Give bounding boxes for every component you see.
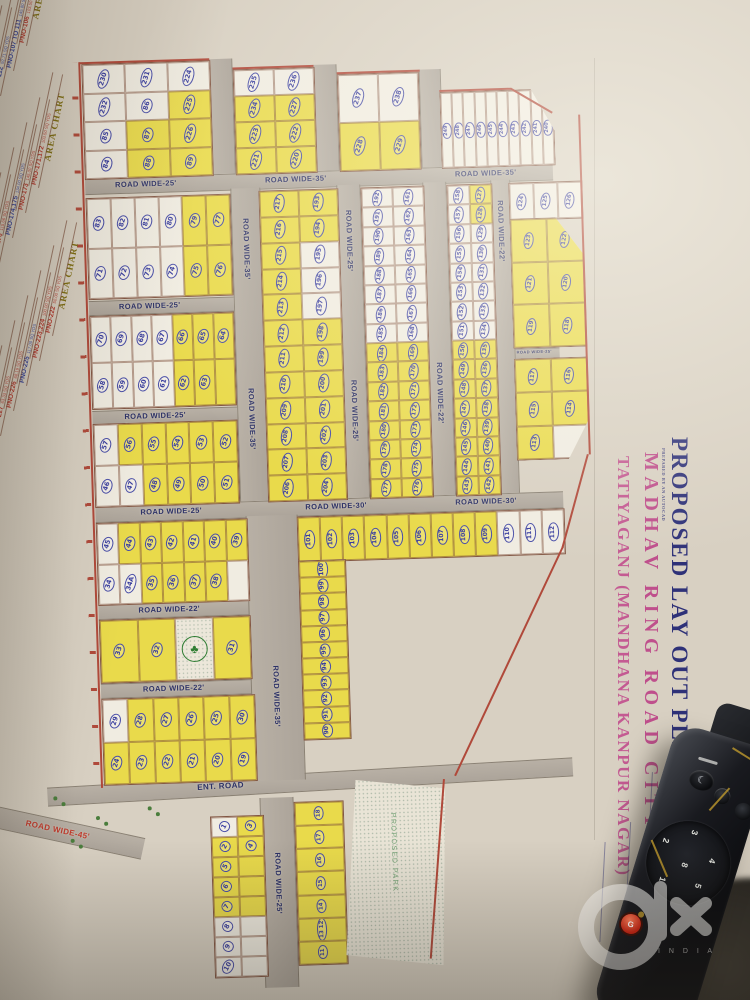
plot-cell: 145 [455,437,478,457]
olx-watermark: I N D I A [568,848,748,968]
plot-cell: 116 [551,357,588,391]
plot-number: 63 [197,374,212,392]
plot-number: 193 [312,193,325,213]
plot-number: 36 [166,573,181,591]
plot-cell: 229 [379,121,420,170]
plot-cell: 40 [204,520,227,561]
plot-cell: 35 [141,562,164,603]
plot-cell: 180 [369,420,401,440]
road-label: ROAD WIDE-30' [305,500,367,511]
plot-cell: 121 [512,261,549,305]
plot-cell: 139 [477,417,500,437]
plot-cell: 226 [169,118,212,148]
plot-number: 91 [321,707,332,722]
plot-number: 113 [529,433,542,452]
plot-cell: 158 [447,185,470,205]
plot-number: 240 [543,119,553,136]
plot-number: 120 [560,273,573,292]
plot-number: 121 [524,274,537,293]
plot-block: 10099989796959493929190 [298,559,352,740]
plot-cell: 222 [275,120,316,147]
plot-number: 27 [159,710,174,728]
plot-cell: 151 [452,321,475,341]
plot-cell: 14 [298,894,347,919]
plot-number: 224 [180,65,196,87]
plot-number: 246 [476,121,486,138]
plot-cell: 179 [369,439,401,459]
plot-cell: 238 [378,73,419,122]
plot-number: 214 [275,271,288,291]
plot-number: 51 [219,474,234,492]
tree-dot [96,816,100,820]
plot-number: 45 [100,535,115,553]
plot-number: 25 [209,709,224,727]
plot-number: 230 [96,68,112,90]
plot-number: 85 [98,127,113,145]
plot-number: 20 [211,751,226,769]
plot-number: 47 [124,477,139,495]
plot-cell: 128 [470,204,493,224]
plot-cell [238,856,265,877]
plot-number: 211 [277,349,290,369]
plot-number: 35 [145,574,160,592]
plot-cell: 118 [549,303,586,347]
plot-cell: 47 [119,464,144,506]
plot-number: 127 [474,185,487,204]
plot-cell: 138 [476,397,499,417]
plot-cell: 174 [400,438,432,458]
plot-cell: 191 [362,207,394,227]
plot-number: 74 [165,263,180,281]
plot-number: 145 [460,437,473,456]
plot-cell: 31 [212,616,251,679]
plot-cell: 134 [474,320,497,340]
plot-cell: 61 [153,360,175,407]
plot-number: 142 [483,476,496,495]
plot-cell: 147 [454,398,477,418]
plot-block: 101102103104105106107108109110111112 [297,508,566,562]
plot-cell: 186 [365,304,397,324]
plot-cell: 36 [162,562,185,603]
plot-cell: 236 [274,68,315,95]
road-label: ROAD WIDE-25' [273,852,284,914]
plot-cell: 54 [165,422,190,464]
plot-cell: 114 [552,391,589,425]
plot-cell: 22 [154,740,181,783]
road-label: ROAD WIDE-22' [138,604,200,615]
plot-number: 53 [194,433,209,451]
plot-number: 202 [319,425,332,445]
plot-cell: 7 [214,897,241,918]
boundary-line [455,547,564,777]
plot-number: 183 [376,363,389,382]
plot-number: 243 [509,120,519,137]
plot-cell: 46 [95,465,120,507]
plot-cell [241,956,268,977]
plot-number: 186 [374,304,387,323]
plot-cell: 28 [128,698,155,741]
plot-number: 8 [220,920,235,935]
plot-cell: 45 [97,523,120,564]
plot-cell: 184 [366,342,398,362]
plot-cell: 73 [136,247,161,298]
plot-number: 161 [402,187,415,206]
plot-number: 141 [483,456,496,475]
plot-number: 137 [480,379,493,398]
plot-cell: 197 [302,293,342,320]
plot-number: 99 [317,578,328,593]
plot-number: 191 [371,208,384,227]
plot-cell: 34A [119,563,142,604]
plot-number: 115 [528,400,541,419]
plot-cell: 70 [90,316,112,363]
plot-cell: 1 [211,817,238,838]
plot-cell: 198 [302,318,342,345]
plot-number: 59 [115,376,130,394]
plot-cell: 117 [515,359,552,393]
plot-number: 226 [182,122,198,144]
plot-number: 48 [148,476,163,494]
plot-number: 87 [140,126,155,144]
plot-cell [240,916,267,937]
plot-number: 7 [219,900,234,915]
plot-number: 244 [498,120,508,137]
plot-cell: 141 [478,456,501,476]
plot-cell: 150 [452,340,475,360]
plot-cell: 42 [161,521,184,562]
plot-cell [553,424,590,458]
plot-cell: 91 [304,706,350,724]
plot-cell: 49 [166,463,191,505]
plot-number: 151 [457,321,470,340]
plot-number: 71 [93,265,108,283]
plot-cell: 37 [184,561,207,602]
plot-number: 23 [135,754,150,772]
plot-cell: 109 [475,511,499,556]
road-label: ROAD WIDE-25' [344,210,355,272]
plot-number: 88 [141,154,156,172]
plot-number: 153 [455,283,468,302]
plot-number: 38 [209,572,224,590]
plot-number: 204 [320,477,333,497]
plot-number: 107 [437,526,448,545]
plot-cell: 92 [303,690,349,708]
plot-number: 181 [377,401,390,420]
plot-block: 249248247246245244243242241240 [439,88,555,169]
plot-number: 90 [322,723,333,738]
plot-number: 245 [487,120,497,137]
plot-number: 198 [316,322,329,342]
plot-number: 215 [274,246,287,266]
plot-number: 81 [139,213,154,231]
plot-cell: 125 [533,182,558,219]
plot-cell: 132 [472,281,495,301]
plot-cell: 18 [295,801,344,826]
plot-number: 49 [171,475,186,493]
tree-dot [104,822,108,826]
plot-number: 104 [370,528,381,547]
plot-number: 221 [248,150,264,172]
plot-number: 108 [459,525,470,544]
plot-number: 156 [453,224,466,243]
road-label: ROAD WIDE-25' [516,349,551,355]
plot-number: 201 [318,399,331,419]
plot-cell: 203 [306,447,346,474]
plot-cell: 55 [141,423,166,465]
road-label: ROAD WIDE-35' [241,218,252,280]
plot-number: 119 [525,316,538,335]
plot-number: 46 [100,477,115,495]
boundary-line [562,454,589,548]
road-label: ROAD WIDE-22' [435,362,446,424]
plot-number: 232 [97,96,113,118]
plot-number: 67 [155,329,170,347]
plot-number: 150 [457,341,470,360]
plot-block: 454443424140393434A35363738 [96,518,251,606]
plot-number: 54 [170,434,185,452]
plot-number: 18 [314,807,325,821]
plot-cell: 102 [320,516,344,561]
plot-cell: 190 [363,226,395,246]
plot-cell: 206 [268,474,308,501]
olx-l-icon [654,881,667,941]
plot-number: 50 [195,474,210,492]
plot-cell: 43 [140,522,163,563]
plot-cell: 187 [364,284,396,304]
plot-number: 170 [407,362,420,381]
plot-number: 171 [408,381,421,400]
plot-block: 838281807977717273747576 [86,194,234,301]
plot-cell: 93 [303,673,349,691]
tree-dot [148,806,152,810]
plot-cell: 235 [234,69,275,96]
plot-cell: 195 [300,241,340,268]
plot-cell: 185 [366,323,398,343]
plot-number: 13 12 [317,918,328,942]
layout-plan-photo: ROAD WIDE-25'ROAD WIDE-35'ROAD WIDE-35'R… [0,0,750,1000]
plot-cell: 106 [408,513,432,558]
plot-cell: 86 [126,91,169,121]
plot-number: 39 [229,531,244,549]
plot-cell: 173 [400,419,432,439]
plot-number: 180 [378,421,391,440]
plot-number: 149 [458,360,471,379]
plot-number: 247 [464,121,474,138]
plot-cell: 165 [395,264,427,284]
plot-number: 10 [220,958,237,977]
plot-cell: 79 [182,195,207,246]
plot-number: 102 [326,529,337,548]
plot-cell: 168 [397,322,429,342]
plot-cell: 217 [259,190,299,217]
plot-number: 165 [404,265,417,284]
plot-number: 96 [319,626,330,641]
plot-cell: 26 [178,697,205,740]
plot-cell: 155 [449,243,472,263]
plot-cell: 57 [94,424,119,466]
plot-cell: 98 [300,593,346,611]
plot-cell: 20 [205,738,232,781]
plot-number: 118 [561,315,574,334]
plot-cell [239,876,266,897]
plot-cell: 126 [557,182,582,219]
plot-cell: 215 [261,242,301,269]
plot-number: 192 [371,188,384,207]
plot-number: 110 [503,524,514,543]
plot-number: 200 [317,374,330,394]
plot-cell: 3 [237,816,264,837]
plot-number: 199 [316,348,329,368]
plot-number: 177 [380,479,393,498]
plot-cell: 88 [127,148,170,178]
plot-cell: 81 [134,197,159,248]
plot-cell: 85 [84,121,127,151]
plot-cell: 131 [472,262,495,282]
plot-number: 154 [455,263,468,282]
plot-cell: 199 [303,344,343,371]
plot-number: 206 [282,478,295,498]
plot-cell: 29 [102,699,129,742]
plot-number: 242 [520,119,530,136]
plot-number: 72 [117,264,132,282]
plot-cell: 44 [118,523,141,564]
plot-cell: 62 [173,360,195,407]
plot-cell: 200 [304,370,344,397]
plot-cell: 66 [172,314,194,361]
moon-button: ☾ [687,767,717,793]
plot-number: 26 [184,709,199,727]
plot-number: 185 [375,324,388,343]
plot-cell: 83 [87,198,112,249]
dial-digit: 3 [689,829,700,836]
remote-tiny-label [698,757,718,766]
dial-digit: 2 [661,837,672,844]
olx-country-label: I N D I A [658,948,716,955]
plot-number: 146 [460,418,473,437]
plot-number: 131 [477,262,490,281]
plot-number: 11 [318,945,329,959]
plot-cell: 193 [298,189,338,216]
plot-number: 238 [390,86,406,108]
plot-cell: 171 [398,380,430,400]
plot-cell: 178 [370,459,402,479]
plot-cell: 2 [212,837,239,858]
plot-number: 212 [277,323,290,343]
plot-cell: 104 [364,515,388,560]
road-label: ROAD WIDE-25' [349,380,360,442]
plot-cell: 237 [338,74,379,123]
plot-number: 117 [527,366,540,385]
plot-cell: 113 [517,425,554,459]
plot-number: 103 [348,528,359,547]
plot-cell: 68 [131,315,153,362]
plot-number: 222 [287,123,303,145]
plot-cell: 189 [363,246,395,266]
plot-number: 130 [476,243,489,262]
plot-cell: 227 [274,94,315,121]
plot-cell: 216 [260,216,300,243]
plot-number: 43 [143,534,158,552]
plot-number: 84 [99,155,114,173]
plot-cell: 164 [394,245,426,265]
plot-number: 114 [564,399,577,418]
plot-cell: 228 [339,122,380,171]
plot-block: 2171932161942151952141962131972121982111… [258,188,348,502]
plot-cell: 130 [471,242,494,262]
plot-number: 174 [410,439,423,458]
plot-cell: 169 [397,341,429,361]
plot-block: 230231224232862258587226848889 [81,60,214,180]
plot-number: 106 [414,526,425,545]
plot-number: 66 [175,328,190,346]
plot-cell: 210 [265,371,305,398]
plot-cell: 76 [207,245,232,296]
plot-cell: 72 [112,248,137,299]
plot-number: 3 [243,819,258,834]
road-label: ROAD WIDE-35' [271,665,282,727]
plot-cell: 84 [85,149,128,179]
plot-number: 229 [392,134,408,156]
plot-cell: 152 [451,301,474,321]
plot-number: 82 [115,214,130,232]
plot-number: 248 [453,122,463,139]
plot-block: 70696867666564585960616263 [89,312,237,411]
plot-cell: 137 [475,378,498,398]
plot-number: 17 [314,830,325,844]
plot-cell: 82 [110,198,135,249]
plot-number: 166 [405,284,418,303]
proposed-park-area: PROPOSED PARK [341,777,451,968]
road-label: ROAD WIDE-30' [455,496,517,507]
plot-cell: 90 [304,722,350,740]
plot-number: 187 [374,285,387,304]
plot-number: 173 [409,420,422,439]
plot-number: 126 [563,191,576,210]
plot-number: 144 [461,457,474,476]
plot-block: 575655545352464748495051 [93,419,241,508]
plot-cell: 182 [367,381,399,401]
plot-number: 15 [316,876,327,890]
tree-dot [156,812,160,816]
plot-cell: 157 [448,204,471,224]
plot-cell: 67 [152,314,174,361]
plot-cell: 183 [367,362,399,382]
plot-cell: 75 [183,245,208,296]
plot-cell: 221 [236,147,277,174]
plot-number: 197 [315,296,328,316]
plot-cell: 4 [238,836,265,857]
plot-number: 29 [108,712,123,730]
plot-number: 97 [318,610,329,625]
plot-cell: 231 [125,63,168,93]
plot-number: 135 [479,340,492,359]
plot-cell: 143 [456,476,479,496]
plot-cell: 111 [519,510,543,555]
road-label: ROAD WIDE-35' [247,388,258,450]
plot-cell: 146 [455,417,478,437]
road-label: ROAD WIDE-25' [140,506,202,517]
plot-cell: 153 [450,282,473,302]
plot-number: 124 [515,192,528,211]
plot-number: 69 [114,330,129,348]
plot-number: 227 [287,97,303,119]
plot-cell: 223 [235,121,276,148]
plot-number: 182 [377,382,390,401]
plot-block: 237238228229 [337,72,422,173]
plot-number: 4 [243,839,258,854]
plot-number: 157 [453,205,466,224]
plot-cell: 232 [83,92,126,122]
